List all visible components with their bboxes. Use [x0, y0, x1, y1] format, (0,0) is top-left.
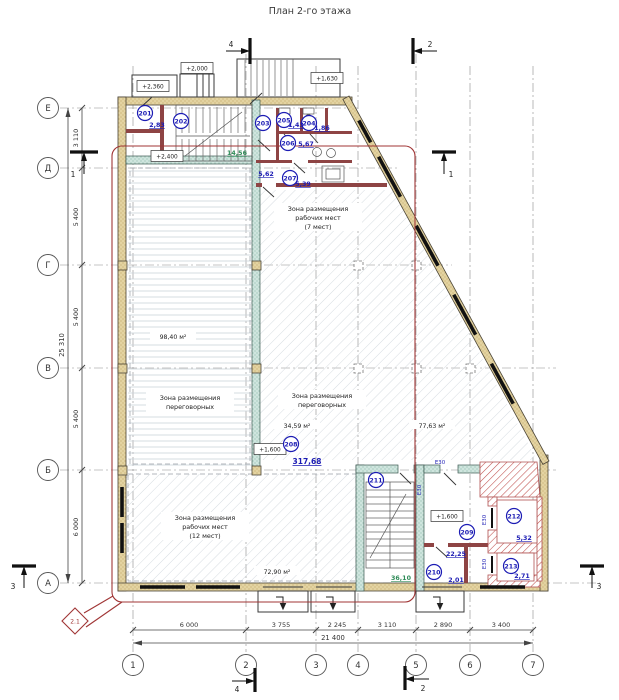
elevation-canopy-mid: +2,000 [186, 67, 208, 73]
zone-work7-line3: (7 мест) [304, 223, 331, 231]
section-marker-top-4: 4 [226, 38, 250, 64]
elevation-ext-stair: +1,630 [316, 77, 338, 83]
sink-1 [313, 148, 322, 157]
zone-work12-line1: Зона размещения [175, 514, 236, 522]
elevation-hall: +1,600 [259, 448, 281, 454]
svg-text:3: 3 [597, 582, 602, 591]
area-205: 1,43 [288, 122, 304, 129]
svg-text:4: 4 [229, 40, 234, 49]
area-210: 2,01 [448, 577, 464, 584]
zone-left-line1: Зона размещения [160, 394, 221, 402]
fire-rating-door-211: E30 [417, 484, 423, 495]
area-209: 22,25 [446, 551, 466, 558]
floor-plan-drawing: 2.1 6 000 3 755 2 245 3 110 2 890 3 400 … [0, 0, 619, 700]
svg-text:2: 2 [421, 684, 426, 693]
grid-col-1: 1 [130, 661, 135, 671]
section-marker-left-3: 3 [11, 566, 36, 591]
area-206: 5,67 [298, 141, 314, 148]
room-badge-211: 211 [369, 478, 382, 485]
fire-rating-lift-213: E30 [482, 558, 488, 569]
room-badge-210: 210 [427, 570, 441, 577]
section-marker-right-3: 3 [580, 566, 604, 591]
svg-text:1: 1 [71, 170, 76, 179]
dim-bottom-5: 3 400 [492, 621, 511, 629]
grid-col-7: 7 [530, 661, 535, 671]
zone-work7-line2: рабочих мест [295, 214, 341, 222]
svg-text:2: 2 [428, 40, 433, 49]
grid-row-e: Е [45, 104, 50, 114]
zone-open-area: 77,63 м² [419, 423, 446, 430]
toilet-tank-2 [303, 108, 314, 114]
dim-bottom-2: 2 245 [328, 621, 347, 629]
area-201: 2,83 [149, 122, 165, 129]
elevation-stair: +1,600 [436, 515, 458, 521]
elevation-canopy-left: +2,360 [142, 85, 164, 91]
area-211: 36,10 [391, 575, 412, 582]
room-badge-212: 212 [507, 514, 520, 521]
grid-row-a: А [45, 579, 51, 589]
grid-row-v: В [45, 364, 51, 374]
room-badge-206: 206 [281, 141, 295, 148]
area-207: 5,39 [295, 181, 311, 188]
grid-col-3: 3 [313, 661, 318, 671]
fire-rating-lift-212: E30 [482, 514, 488, 525]
zone-left-area: 98,40 м² [160, 334, 187, 341]
zone-meeting-area: 34,59 м² [284, 423, 311, 430]
area-213: 2,71 [514, 573, 530, 580]
grid-row-g: Г [45, 261, 50, 271]
area-202: 14,56 [227, 150, 248, 157]
room-badge-208: 208 [284, 442, 297, 449]
section-marker-left-1: 1 [70, 152, 98, 179]
area-212: 5,32 [516, 535, 532, 542]
dim-bottom-0: 6 000 [180, 621, 199, 629]
section-marker-right-1: 1 [432, 152, 456, 179]
dim-left-total: 25 310 [58, 333, 66, 357]
dim-bottom-4: 2 890 [434, 621, 453, 629]
dim-left-2: 5 400 [72, 308, 80, 327]
room-badge-201: 201 [138, 111, 151, 118]
room-badge-213: 213 [504, 564, 517, 571]
grid-row-d: Д [45, 164, 52, 174]
zone-meeting-line1: Зона размещения [292, 392, 353, 400]
zone-work12-line2: рабочих мест [182, 523, 228, 531]
drawing-title: План 2-го этажа [269, 6, 352, 17]
dim-left-3: 5 400 [72, 410, 80, 429]
room-badge-203: 203 [256, 121, 269, 128]
section-marker-top-2: 2 [413, 38, 437, 64]
area-203: 5,62 [258, 171, 274, 178]
grid-col-4: 4 [355, 661, 360, 671]
dim-left-1: 5 400 [72, 208, 80, 227]
elevation-landing: +2,400 [156, 155, 178, 161]
entry-arrow-icon [276, 597, 443, 609]
sink-2 [327, 149, 336, 158]
zone-work12-line3: (12 мест) [189, 532, 220, 540]
svg-text:3: 3 [11, 582, 16, 591]
area-204: 1,86 [314, 125, 330, 132]
zone-work12-area: 72,90 м² [264, 569, 291, 576]
svg-text:4: 4 [235, 685, 240, 694]
dim-left-0: 3 110 [72, 129, 80, 148]
room-badge-209: 209 [460, 530, 473, 537]
dim-bottom-1: 3 755 [272, 621, 291, 629]
counter [322, 166, 344, 182]
grid-row-b: Б [45, 466, 51, 476]
area-208: 317,68 [293, 457, 322, 466]
hatch-left-hall [128, 166, 252, 466]
bottom-dimensions: 6 000 3 755 2 245 3 110 2 890 3 400 21 4… [130, 621, 536, 646]
zone-meeting-line2: переговорных [298, 401, 346, 409]
grid-col-2: 2 [243, 661, 248, 671]
room-badge-202: 202 [174, 119, 187, 126]
fire-rating-door-209: E30 [435, 460, 446, 466]
zone-left-line2: переговорных [166, 403, 214, 411]
svg-text:1: 1 [449, 170, 454, 179]
counter-inner [326, 169, 340, 179]
floor-plan-page: 2.1 6 000 3 755 2 245 3 110 2 890 3 400 … [0, 0, 619, 700]
dim-left-4: 6 000 [72, 518, 80, 537]
stair-211 [366, 482, 414, 568]
revision-marker-label: 2.1 [70, 619, 80, 626]
grid-col-6: 6 [467, 661, 472, 671]
dim-bottom-3: 3 110 [378, 621, 397, 629]
dim-bottom-total: 21 400 [321, 634, 345, 642]
zone-work7-line1: Зона размещения [288, 205, 349, 213]
grid-col-5: 5 [413, 661, 418, 671]
